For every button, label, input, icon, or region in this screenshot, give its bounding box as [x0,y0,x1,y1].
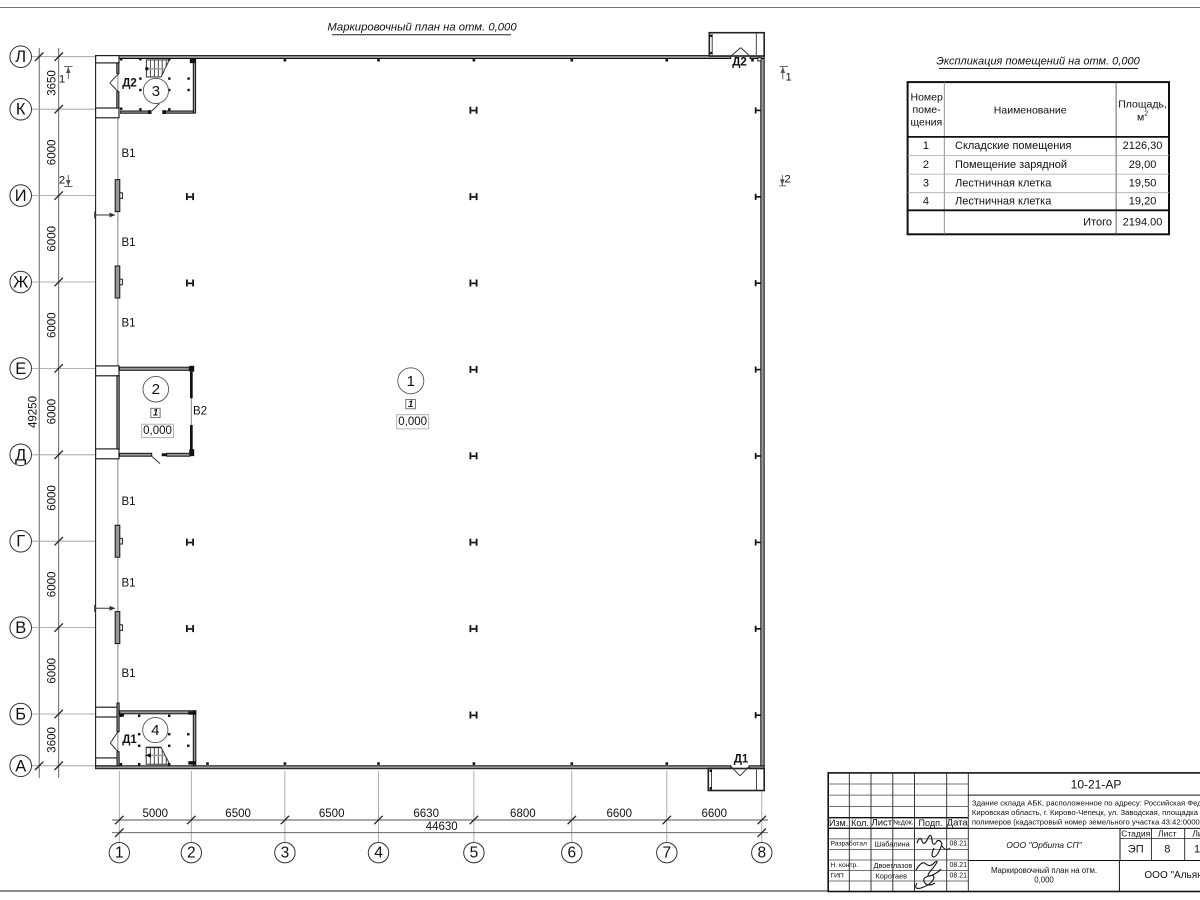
svg-text:5000: 5000 [143,808,169,820]
svg-text:3650: 3650 [46,70,58,96]
svg-text:Л: Л [15,48,26,66]
svg-text:Кол.: Кол. [851,818,869,828]
svg-text:Лестничная клетка: Лестничная клетка [955,196,1052,208]
svg-text:7: 7 [662,845,671,862]
svg-text:0,000: 0,000 [1034,876,1054,885]
svg-text:Наименование: Наименование [994,104,1067,116]
svg-text:полимеров (кадастровый номер з: полимеров (кадастровый номер земельного … [972,817,1200,826]
svg-text:Ли: Ли [1192,828,1200,838]
svg-text:0,000: 0,000 [398,416,427,428]
svg-text:6: 6 [567,845,576,862]
svg-text:3: 3 [152,83,160,100]
svg-text:Площадь,: Площадь, [1118,99,1167,111]
svg-text:08.21: 08.21 [950,841,968,848]
svg-text:2: 2 [923,159,929,171]
svg-text:6000: 6000 [46,572,58,598]
svg-text:Экспликация помещений на отм.: Экспликация помещений на отм. 0,000 [936,56,1140,68]
svg-text:И: И [15,187,27,205]
svg-text:№док.: №док. [893,820,914,827]
svg-text:08.21: 08.21 [950,862,968,869]
svg-text:6000: 6000 [46,399,58,425]
svg-text:Помещение зарядной: Помещение зарядной [955,159,1067,171]
svg-text:Маркировочный план на отм.: Маркировочный план на отм. [991,866,1097,875]
svg-text:6600: 6600 [702,808,728,820]
svg-text:6000: 6000 [46,312,58,338]
svg-text:Шабалина: Шабалина [875,840,911,849]
svg-text:Д: Д [15,446,26,464]
svg-text:Маркировочный план на отм. 0,0: Маркировочный план на отм. 0,000 [327,22,517,34]
svg-text:29,00: 29,00 [1129,159,1157,171]
svg-text:1: 1 [115,845,124,862]
svg-text:3: 3 [923,177,929,189]
svg-text:Здание склада АБК, расположенн: Здание склада АБК, расположенное по адре… [972,799,1200,808]
svg-text:1: 1 [923,140,929,152]
svg-text:1: 1 [1194,844,1200,856]
svg-text:1: 1 [408,399,413,410]
svg-text:поме-: поме- [913,104,942,116]
svg-text:6500: 6500 [319,808,345,820]
svg-text:Б: Б [15,706,26,724]
svg-text:Подп.: Подп. [919,818,943,828]
svg-text:6600: 6600 [607,808,633,820]
svg-text:0,000: 0,000 [143,425,172,437]
svg-text:6000: 6000 [46,140,58,166]
svg-text:2126,30: 2126,30 [1123,140,1163,152]
svg-text:5: 5 [470,845,479,862]
svg-text:Е: Е [15,360,26,378]
svg-text:ООО "Орбита СП": ООО "Орбита СП" [1006,840,1082,850]
svg-text:К: К [16,101,26,119]
svg-text:6500: 6500 [225,808,251,820]
svg-text:8: 8 [757,845,766,862]
svg-text:1: 1 [407,373,415,390]
svg-text:Коротаев: Коротаев [876,871,908,880]
svg-text:19,20: 19,20 [1129,196,1157,208]
svg-text:Д1: Д1 [734,754,749,766]
svg-text:ЭП: ЭП [1128,844,1144,856]
svg-text:В1: В1 [121,317,135,329]
svg-text:2194.00: 2194.00 [1123,216,1163,228]
svg-text:ООО "Альянс: ООО "Альянс [1144,870,1200,881]
svg-text:1: 1 [153,408,158,419]
svg-text:Лист: Лист [871,818,892,829]
svg-text:1: 1 [59,74,65,86]
svg-text:19,50: 19,50 [1129,177,1157,189]
svg-text:В: В [15,619,26,637]
svg-text:Д2: Д2 [122,77,137,89]
svg-text:Лестничная клетка: Лестничная клетка [955,177,1052,189]
svg-text:Дата: Дата [947,818,969,829]
svg-text:В1: В1 [121,148,135,160]
svg-text:Номер: Номер [911,91,943,103]
svg-text:В1: В1 [121,237,135,249]
svg-text:Д1: Д1 [122,734,137,746]
svg-text:4: 4 [923,196,929,208]
svg-text:44630: 44630 [426,821,458,833]
svg-text:49250: 49250 [28,396,40,428]
svg-text:4: 4 [374,845,383,862]
svg-text:Итого: Итого [1083,216,1112,228]
svg-text:Н. контр.: Н. контр. [831,862,859,869]
svg-text:В1: В1 [121,578,135,590]
svg-text:2: 2 [187,845,196,862]
svg-text:В1: В1 [121,668,135,680]
svg-text:8: 8 [1164,844,1170,856]
svg-text:В1: В1 [121,496,135,508]
svg-text:10-21-АР: 10-21-АР [1071,777,1122,791]
svg-text:Стадия: Стадия [1121,828,1150,838]
svg-text:08.21: 08.21 [950,872,968,879]
svg-text:3600: 3600 [46,727,58,753]
svg-text:ГИП: ГИП [831,872,844,879]
svg-text:2: 2 [59,175,65,187]
svg-text:Изм.: Изм. [829,818,848,828]
svg-text:2: 2 [152,381,160,398]
svg-text:Разработал: Разработал [831,840,867,848]
svg-text:Лист: Лист [1158,828,1177,838]
svg-text:Кировская область, г. Кирово-Ч: Кировская область, г. Кирово-Чепецк, ул.… [972,808,1200,817]
svg-text:В2: В2 [193,406,207,418]
svg-text:Ж: Ж [13,274,29,292]
svg-text:6000: 6000 [46,658,58,684]
svg-text:3: 3 [281,845,290,862]
svg-text:2: 2 [784,174,790,186]
svg-text:6000: 6000 [46,226,58,252]
svg-text:1: 1 [785,72,791,84]
svg-text:Г: Г [16,533,25,551]
svg-text:Двоеглазов: Двоеглазов [874,861,913,870]
svg-text:6000: 6000 [46,485,58,511]
svg-text:А: А [15,757,26,775]
svg-text:6630: 6630 [413,808,439,820]
svg-text:Складские помещения: Складские помещения [955,140,1071,152]
svg-text:щения: щения [911,117,943,129]
svg-text:Д2: Д2 [732,57,747,69]
svg-text:6800: 6800 [510,808,536,820]
svg-text:4: 4 [151,722,159,739]
